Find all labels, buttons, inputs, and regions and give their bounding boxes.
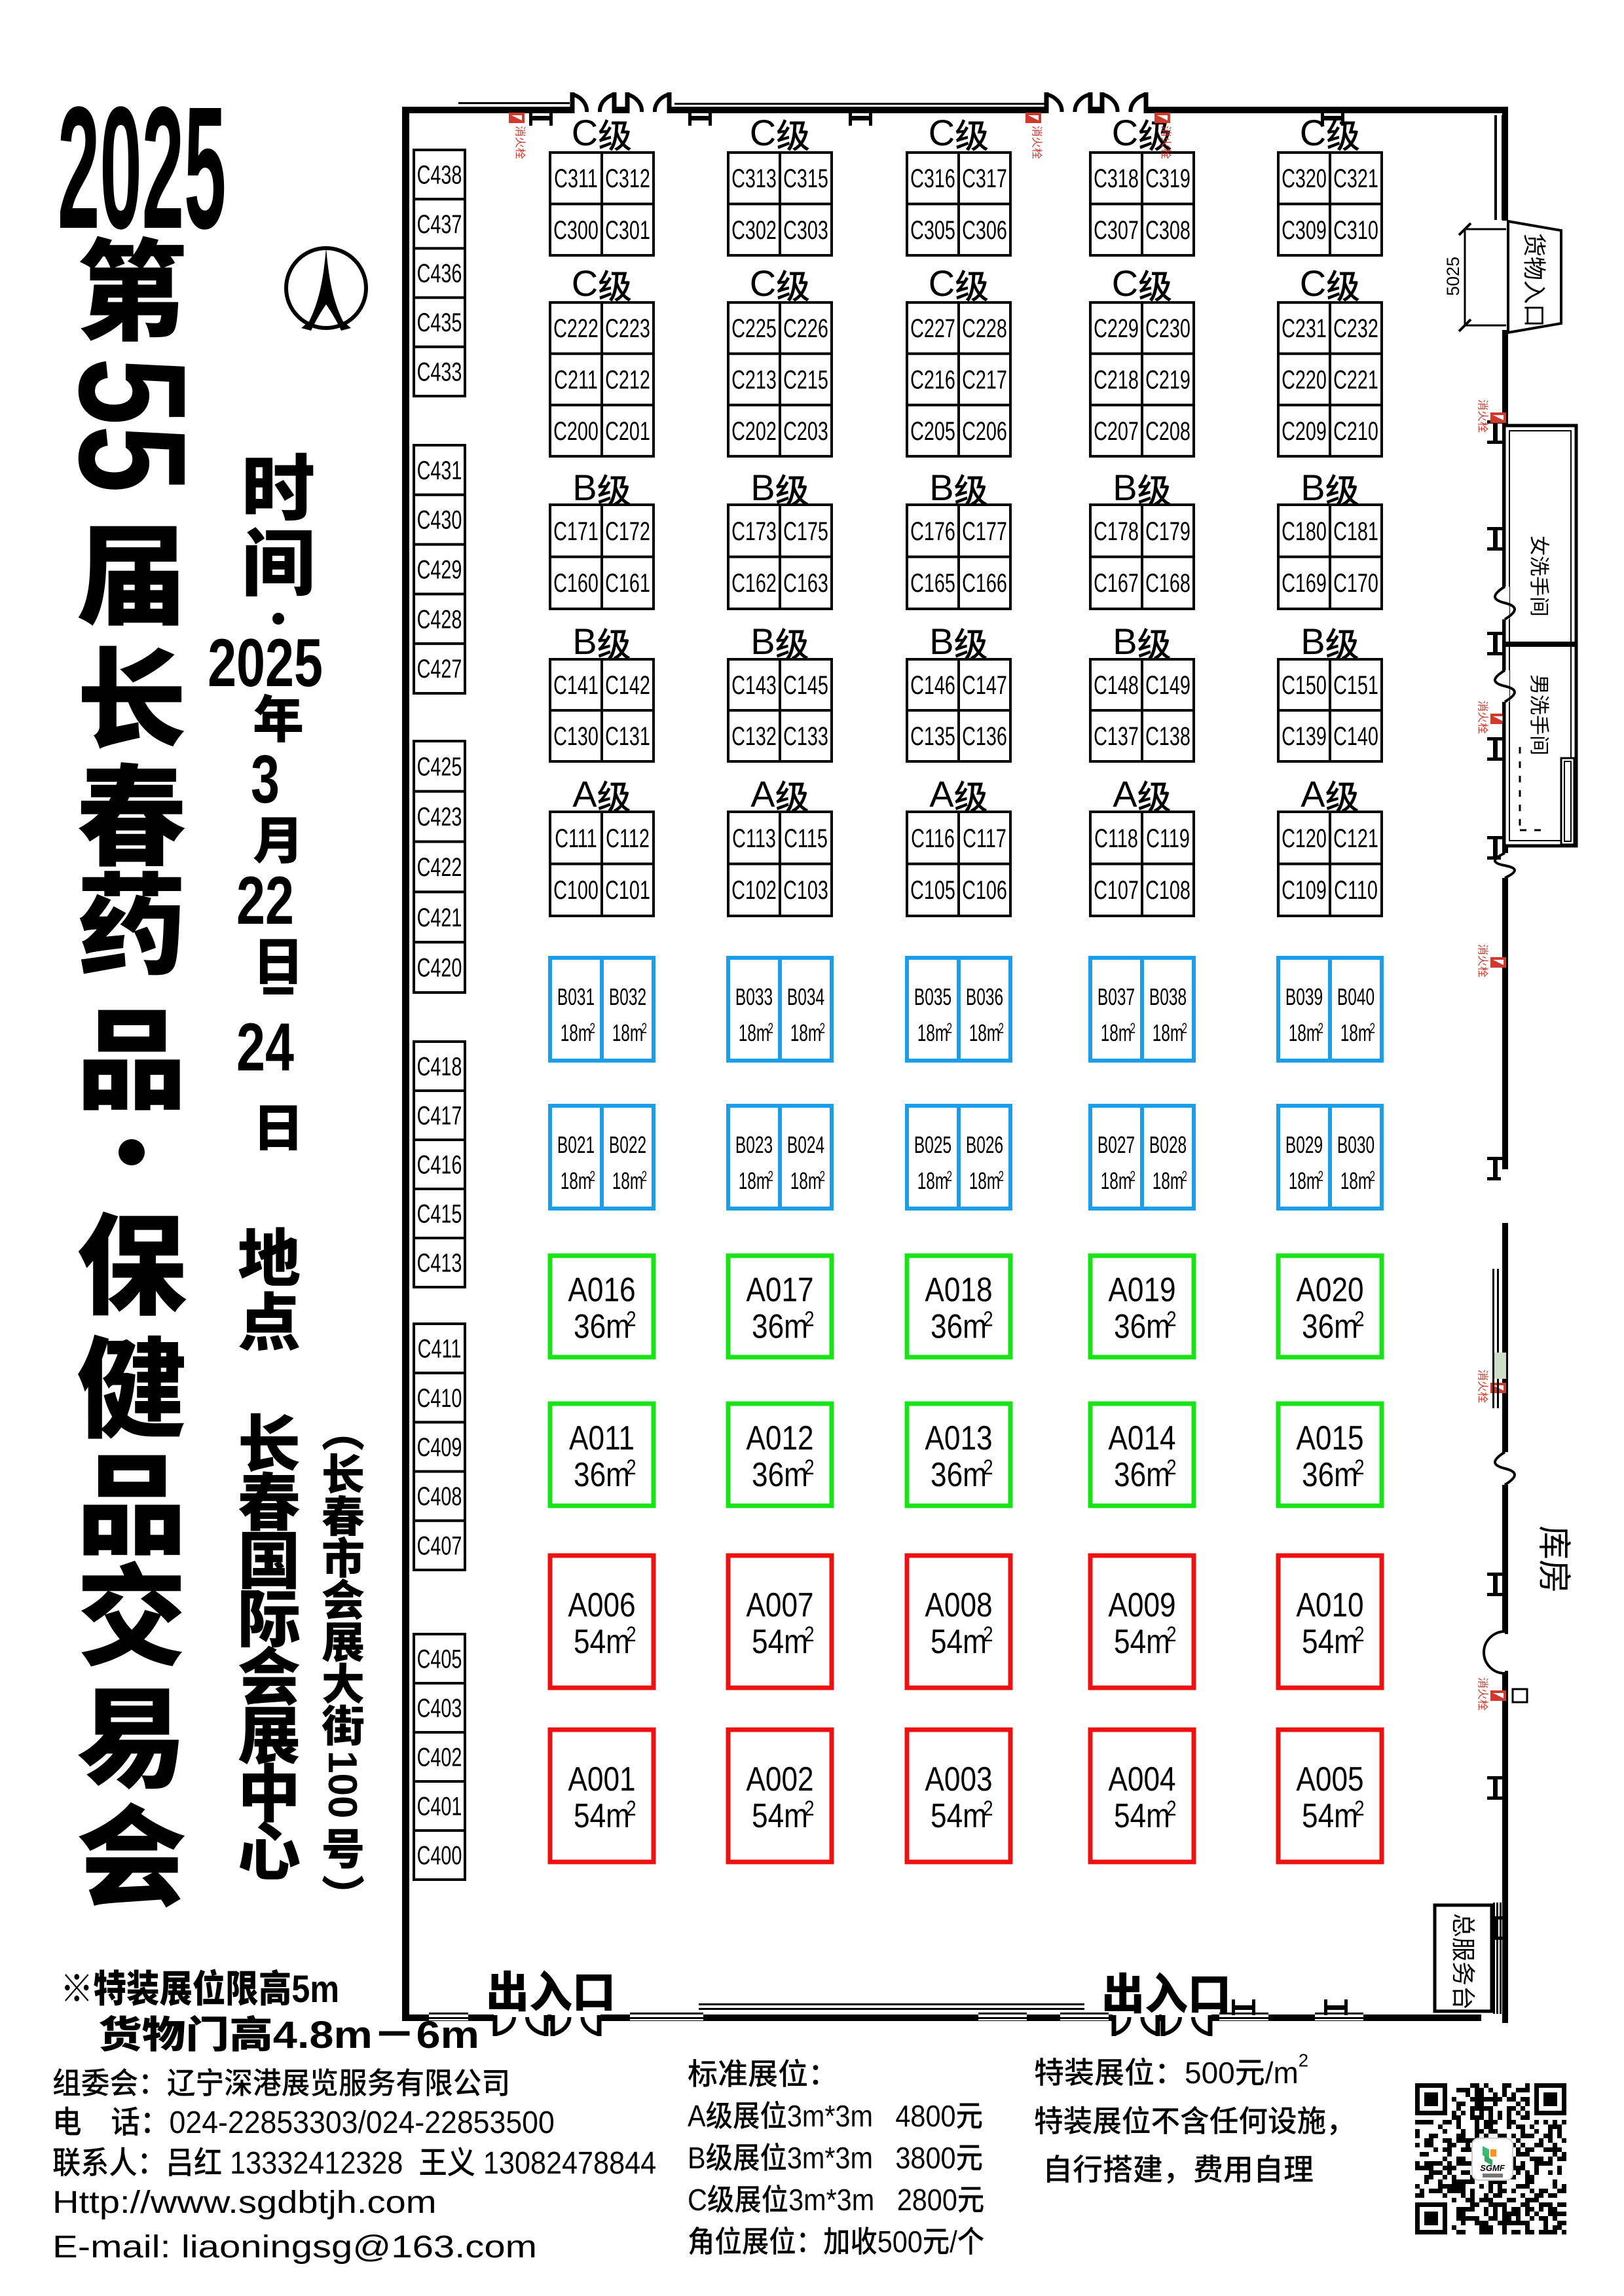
svg-text:18m: 18m [561,1167,592,1194]
svg-text:100: 100 [320,1751,365,1818]
svg-text:C407: C407 [417,1531,462,1561]
svg-text:B028: B028 [1149,1131,1187,1158]
svg-text:3m*3m: 3m*3m [787,2141,873,2176]
svg-text:A019: A019 [1108,1271,1175,1309]
svg-text:C305: C305 [910,215,955,245]
svg-text:C409: C409 [417,1432,462,1462]
svg-text:5025: 5025 [1443,257,1463,296]
svg-text:B038: B038 [1149,983,1187,1010]
svg-text:C: C [750,263,776,304]
svg-text:C321: C321 [1333,164,1378,194]
svg-text:B023: B023 [735,1131,773,1158]
svg-text:C170: C170 [1333,569,1378,598]
svg-text:18m: 18m [1101,1167,1132,1194]
svg-text:E-mail:: E-mail: [52,2230,171,2265]
svg-text:C223: C223 [605,314,650,344]
svg-text:36m: 36m [574,1456,630,1494]
svg-text:C168: C168 [1145,569,1190,598]
svg-text:500: 500 [1185,2056,1235,2090]
svg-text:C422: C422 [417,852,462,882]
svg-text:18m: 18m [739,1167,770,1194]
svg-text:C302: C302 [731,215,777,245]
svg-text:C320: C320 [1282,164,1327,194]
svg-text:2: 2 [642,1168,647,1184]
svg-text:C212: C212 [605,365,650,395]
svg-text:C146: C146 [910,670,955,700]
svg-text:18m: 18m [1153,1019,1184,1046]
svg-text:54m: 54m [752,1797,808,1835]
svg-text:2: 2 [1354,1307,1364,1331]
svg-text:18m: 18m [790,1019,822,1046]
svg-text:B040: B040 [1337,983,1375,1010]
svg-text:B031: B031 [557,983,595,1010]
svg-text:C229: C229 [1094,314,1139,344]
svg-text:C150: C150 [1282,670,1327,700]
svg-text:C427: C427 [417,655,462,684]
svg-text:B034: B034 [787,983,824,1010]
svg-text:18m: 18m [1340,1167,1372,1194]
svg-text:18m: 18m [1289,1019,1320,1046]
svg-text:B029: B029 [1285,1131,1323,1158]
svg-text:B: B [1113,621,1137,662]
svg-text:C436: C436 [417,259,462,288]
svg-text:C428: C428 [417,605,462,634]
svg-text:2: 2 [804,1456,814,1480]
svg-text:C141: C141 [553,670,599,700]
svg-text:54m: 54m [752,1623,808,1661]
svg-text:C202: C202 [731,416,777,446]
svg-text:C306: C306 [962,215,1007,245]
svg-text:2: 2 [999,1168,1004,1184]
svg-text:C169: C169 [1282,569,1327,598]
svg-text:C228: C228 [962,314,1007,344]
svg-text:C106: C106 [962,876,1007,905]
svg-text:B: B [750,467,775,508]
svg-text:18m: 18m [561,1019,592,1046]
svg-text:C102: C102 [731,876,777,905]
svg-text:2: 2 [820,1168,825,1184]
svg-text:C207: C207 [1094,416,1139,446]
svg-text:C203: C203 [783,416,828,446]
svg-text:C171: C171 [553,517,599,546]
svg-text:C310: C310 [1333,215,1378,245]
svg-text:C: C [929,112,955,153]
svg-text:18m: 18m [969,1167,1001,1194]
svg-text:A015: A015 [1296,1419,1363,1457]
svg-text:B024: B024 [787,1131,824,1158]
svg-text:36m: 36m [752,1456,808,1494]
svg-text:18m: 18m [917,1167,949,1194]
svg-text:C225: C225 [731,314,777,344]
svg-text:C401: C401 [417,1792,462,1821]
svg-text:54m: 54m [574,1797,630,1835]
svg-text:C: C [1300,112,1326,153]
svg-text:/m: /m [1265,2056,1299,2090]
svg-text:B036: B036 [966,983,1003,1010]
svg-text:C135: C135 [910,721,955,751]
svg-text:C116: C116 [911,824,955,853]
svg-text:B033: B033 [735,983,773,1010]
svg-text:A: A [750,773,775,814]
svg-text:18m: 18m [1289,1167,1320,1194]
svg-text:B: B [688,2141,706,2176]
svg-text:C140: C140 [1333,721,1378,751]
svg-text:C421: C421 [417,903,462,932]
svg-text:C435: C435 [417,308,462,338]
svg-text:C: C [750,112,776,153]
svg-text:2: 2 [1299,2050,1308,2071]
svg-text:B026: B026 [966,1131,1003,1158]
svg-text:C145: C145 [783,670,828,700]
svg-text:18m: 18m [790,1167,822,1194]
svg-text:2: 2 [768,1168,773,1184]
svg-text:54m: 54m [574,1623,630,1661]
svg-text:C232: C232 [1333,314,1378,344]
svg-text:C137: C137 [1094,721,1139,751]
svg-text:2025: 2025 [208,624,323,701]
svg-text:C142: C142 [605,670,650,700]
svg-text:C200: C200 [553,416,599,446]
svg-text:2: 2 [804,1797,814,1821]
svg-text:C176: C176 [910,517,955,546]
svg-text:C161: C161 [605,569,650,598]
svg-text:C222: C222 [553,314,599,344]
svg-text:2: 2 [947,1020,952,1036]
svg-text:A017: A017 [746,1271,813,1309]
svg-text:18m: 18m [969,1019,1001,1046]
svg-text:54m: 54m [1114,1623,1170,1661]
svg-text:18m: 18m [917,1019,949,1046]
svg-text:5m: 5m [291,1968,339,2011]
svg-text:2: 2 [768,1020,773,1036]
svg-text:C136: C136 [962,721,1007,751]
svg-text:C: C [572,263,598,304]
svg-text:C403: C403 [417,1694,462,1723]
svg-text:C315: C315 [783,164,828,194]
svg-text:A013: A013 [925,1419,992,1457]
svg-text:2: 2 [1130,1020,1135,1036]
svg-text:6m: 6m [416,2014,479,2056]
svg-text:2: 2 [1354,1623,1364,1647]
svg-text:A012: A012 [746,1419,813,1457]
svg-text:C115: C115 [784,824,828,853]
svg-text:36m: 36m [752,1307,808,1345]
svg-text:C105: C105 [910,876,955,905]
svg-text:C177: C177 [962,517,1007,546]
svg-text:C117: C117 [963,824,1006,853]
svg-text:2: 2 [947,1168,952,1184]
svg-text:54m: 54m [931,1797,987,1835]
svg-text:2: 2 [820,1020,825,1036]
svg-text:C120: C120 [1282,824,1327,853]
svg-text:2: 2 [626,1456,636,1480]
svg-text:C307: C307 [1094,215,1139,245]
svg-text:A007: A007 [746,1586,813,1624]
svg-text:2: 2 [590,1020,595,1036]
svg-text:18m: 18m [612,1167,644,1194]
svg-text:A: A [929,773,954,814]
svg-text:C211: C211 [554,365,598,395]
svg-text:C148: C148 [1094,670,1139,700]
svg-text:18m: 18m [1101,1019,1132,1046]
svg-text:24: 24 [236,1008,294,1085]
svg-text:C431: C431 [417,456,462,485]
svg-text:A: A [1113,773,1137,814]
svg-text:/: / [950,2225,957,2259]
svg-text:C162: C162 [731,569,777,598]
svg-text:C: C [1112,263,1138,304]
svg-text:C303: C303 [783,215,828,245]
svg-text:2: 2 [1182,1020,1187,1036]
svg-text:3: 3 [251,740,280,817]
svg-text:2: 2 [1166,1797,1176,1821]
svg-text:C: C [688,2183,707,2217]
svg-text:C210: C210 [1333,416,1378,446]
svg-text:3m*3m: 3m*3m [788,2183,874,2217]
svg-text:C410: C410 [417,1383,462,1413]
svg-text:C425: C425 [417,752,462,782]
svg-text:C317: C317 [962,164,1007,194]
svg-text:2: 2 [983,1797,993,1821]
svg-text:2: 2 [626,1307,636,1331]
svg-text:A011: A011 [569,1419,635,1457]
svg-text:36m: 36m [1114,1307,1170,1345]
svg-text:C227: C227 [910,314,955,344]
svg-text:2: 2 [1166,1623,1176,1647]
svg-text:18m: 18m [1153,1167,1184,1194]
svg-text:B025: B025 [914,1131,951,1158]
svg-text:18m: 18m [739,1019,770,1046]
svg-text:B: B [750,621,775,662]
svg-text:C226: C226 [783,314,828,344]
svg-text:2: 2 [1130,1168,1135,1184]
svg-text:2: 2 [983,1623,993,1647]
svg-text:A: A [572,773,597,814]
svg-text:C: C [929,263,955,304]
svg-text:18m: 18m [1340,1019,1372,1046]
svg-text:C130: C130 [553,721,599,751]
svg-text:22: 22 [236,862,294,938]
svg-text:C215: C215 [783,365,828,395]
svg-text:2: 2 [1354,1797,1364,1821]
svg-text:C418: C418 [417,1052,462,1082]
svg-text:C420: C420 [417,953,462,983]
svg-text:36m: 36m [931,1307,987,1345]
svg-text:4.8m: 4.8m [273,2014,373,2056]
svg-text:C423: C423 [417,803,462,832]
svg-text:B030: B030 [1337,1131,1375,1158]
svg-text:C209: C209 [1282,416,1327,446]
svg-text:C319: C319 [1145,164,1190,194]
svg-text:C181: C181 [1333,517,1378,546]
svg-text:2: 2 [983,1456,993,1480]
svg-text:2: 2 [999,1020,1004,1036]
svg-text:C206: C206 [962,416,1007,446]
svg-text:024-22853303/024-22853500: 024-22853303/024-22853500 [170,2105,555,2140]
svg-text:C100: C100 [553,876,599,905]
svg-text:C415: C415 [417,1199,462,1229]
svg-text:2800: 2800 [897,2183,957,2217]
svg-text:C178: C178 [1094,517,1139,546]
svg-text:4800: 4800 [895,2100,955,2134]
svg-text:54m: 54m [1302,1797,1358,1835]
svg-text:C416: C416 [417,1150,462,1180]
svg-text:2: 2 [626,1623,636,1647]
svg-text:C218: C218 [1094,365,1139,395]
svg-text:A: A [688,2100,706,2134]
svg-text:C437: C437 [417,210,462,239]
svg-text:C208: C208 [1145,416,1190,446]
svg-text:36m: 36m [1302,1456,1358,1494]
svg-text:C109: C109 [1282,876,1327,905]
svg-text:2: 2 [804,1623,814,1647]
svg-text:500: 500 [877,2225,923,2259]
svg-text:B035: B035 [914,983,951,1010]
svg-text:36m: 36m [1302,1307,1358,1345]
svg-text:C172: C172 [605,517,650,546]
svg-text:18m: 18m [612,1019,644,1046]
svg-text:C300: C300 [553,215,599,245]
svg-text:B032: B032 [609,983,646,1010]
svg-text:C: C [1112,112,1138,153]
svg-text:C429: C429 [417,555,462,585]
svg-text:2: 2 [1370,1020,1375,1036]
svg-text:2: 2 [1354,1456,1364,1480]
svg-text:C167: C167 [1094,569,1139,598]
svg-text:C309: C309 [1282,215,1327,245]
svg-text:C139: C139 [1282,721,1327,751]
svg-text:C411: C411 [418,1334,462,1364]
svg-text:C132: C132 [731,721,777,751]
svg-text:C301: C301 [605,215,650,245]
svg-text:2: 2 [1318,1020,1323,1036]
svg-text:C151: C151 [1333,670,1378,700]
svg-text:C175: C175 [783,517,828,546]
svg-text:C213: C213 [731,365,777,395]
svg-text:Http://www.sgdbtjh.com: Http://www.sgdbtjh.com [52,2185,437,2220]
svg-text:C166: C166 [962,569,1007,598]
svg-text:C149: C149 [1145,670,1190,700]
svg-text:54m: 54m [1114,1797,1170,1835]
svg-text:2: 2 [804,1307,814,1331]
svg-text:SGMF: SGMF [1480,2163,1505,2173]
svg-text:C220: C220 [1282,365,1327,395]
svg-text:C111: C111 [555,824,597,853]
svg-text:A010: A010 [1296,1586,1363,1624]
svg-text:C160: C160 [553,569,599,598]
svg-text:C313: C313 [731,164,777,194]
svg-text:C131: C131 [605,721,650,751]
svg-text:B: B [1301,467,1325,508]
svg-text:C: C [572,112,598,153]
svg-text:liaoningsg@163.com: liaoningsg@163.com [181,2230,537,2265]
svg-text:A: A [1301,773,1325,814]
svg-text:B039: B039 [1285,983,1323,1010]
svg-text:36m: 36m [931,1456,987,1494]
svg-text:C119: C119 [1146,824,1190,853]
svg-text:C219: C219 [1145,365,1190,395]
svg-text:C121: C121 [1333,824,1378,853]
svg-text:C113: C113 [732,824,776,853]
svg-text:C179: C179 [1145,517,1190,546]
svg-text:54m: 54m [1302,1623,1358,1661]
svg-text:3800: 3800 [895,2141,955,2176]
svg-text:A016: A016 [568,1271,635,1309]
svg-text:36m: 36m [574,1307,630,1345]
svg-text:B037: B037 [1098,983,1135,1010]
svg-text:36m: 36m [1114,1456,1170,1494]
svg-text:C311: C311 [554,164,598,194]
svg-text:A009: A009 [1108,1586,1175,1624]
svg-text:54m: 54m [931,1623,987,1661]
svg-text:C312: C312 [605,164,650,194]
svg-text:C112: C112 [606,824,650,853]
svg-text:2: 2 [1318,1168,1323,1184]
svg-text:A002: A002 [746,1760,813,1798]
svg-text:A005: A005 [1296,1760,1363,1798]
svg-text:2: 2 [642,1020,647,1036]
svg-text:55: 55 [47,357,218,493]
svg-text:C221: C221 [1333,365,1378,395]
svg-text:C107: C107 [1094,876,1139,905]
svg-text:C417: C417 [417,1101,462,1131]
svg-text:A018: A018 [925,1271,992,1309]
svg-text:C101: C101 [605,876,650,905]
svg-text:2: 2 [1166,1307,1176,1331]
svg-text:C217: C217 [962,365,1007,395]
svg-text:B: B [1301,621,1325,662]
svg-text:C316: C316 [910,164,955,194]
svg-text:C143: C143 [731,670,777,700]
svg-text:B: B [572,621,597,662]
svg-text:C103: C103 [783,876,828,905]
svg-text:A003: A003 [925,1760,992,1798]
svg-text:C147: C147 [962,670,1007,700]
svg-text:C180: C180 [1282,517,1327,546]
svg-text:C413: C413 [417,1248,462,1278]
svg-text:C: C [1300,263,1326,304]
svg-text:C430: C430 [417,505,462,535]
svg-text:A006: A006 [568,1586,635,1624]
svg-text:C405: C405 [417,1645,462,1674]
svg-text:C165: C165 [910,569,955,598]
svg-text:B027: B027 [1098,1131,1135,1158]
svg-text:B: B [929,467,953,508]
svg-text:A008: A008 [925,1586,992,1624]
svg-text:C230: C230 [1145,314,1190,344]
svg-text:13332412328: 13332412328 [230,2145,403,2181]
svg-text:B: B [929,621,953,662]
svg-text:C231: C231 [1282,314,1327,344]
svg-text:C163: C163 [783,569,828,598]
svg-text:13082478844: 13082478844 [483,2145,656,2181]
svg-text:C318: C318 [1094,164,1139,194]
svg-text:A014: A014 [1108,1419,1175,1457]
svg-text:2: 2 [590,1168,595,1184]
svg-text:2025: 2025 [58,71,226,265]
svg-text:B: B [572,467,597,508]
svg-text:C133: C133 [783,721,828,751]
svg-text:C118: C118 [1094,824,1138,853]
svg-text:C433: C433 [417,357,462,387]
svg-text:2: 2 [983,1307,993,1331]
svg-text:C138: C138 [1145,721,1190,751]
svg-text:C408: C408 [417,1482,462,1512]
svg-text:C110: C110 [1334,876,1378,905]
svg-text:2: 2 [1370,1168,1375,1184]
svg-text:C308: C308 [1145,215,1190,245]
svg-text:C438: C438 [417,160,462,190]
